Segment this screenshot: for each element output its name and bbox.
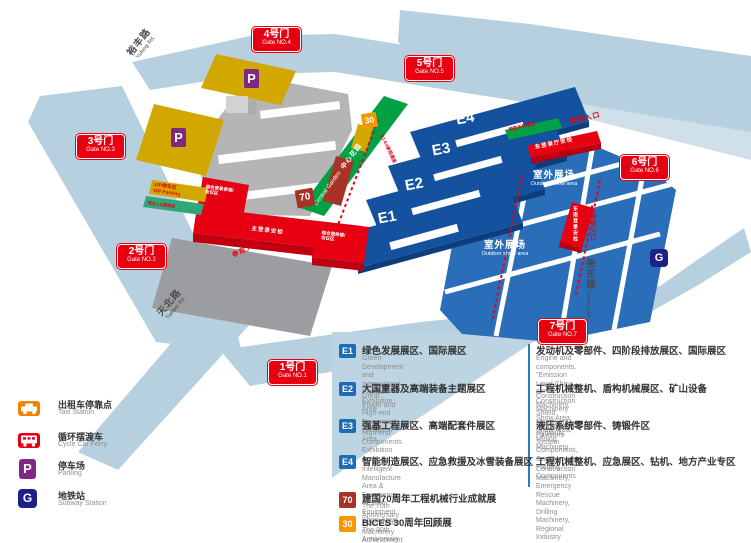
- parking-icon: P: [171, 128, 186, 147]
- parking-icon: P: [19, 459, 36, 479]
- gate-7-sublabel: Gate NO.7: [539, 332, 586, 339]
- legend-parking-en: Parking: [58, 470, 82, 477]
- gate-2-badge: 2号门 Gate NO.2: [117, 244, 166, 269]
- check-southeast-label: 东南登录安检: [572, 206, 579, 242]
- hall-e2-label: E2: [404, 174, 425, 194]
- gate-2-label: 2号门: [118, 246, 165, 257]
- legend-ferry: 循环摆渡车 Cycle Car Ferry: [18, 430, 158, 458]
- outdoor-label-north: 室外展场 Outdoor show area: [514, 170, 594, 188]
- legend-e4-en-right: Construction Machinery, Emergency Rescue…: [536, 466, 575, 543]
- legend-ferry-en: Cycle Car Ferry: [58, 441, 107, 448]
- subway-station-icon: G: [18, 489, 37, 508]
- gate-4-badge: 4号门 Gate NO.4: [252, 27, 301, 52]
- gate-4-sublabel: Gate NO.4: [253, 40, 300, 47]
- road-label-yudong: 裕东路 Yudong Rd.: [584, 258, 594, 318]
- gate-3-sublabel: Gate NO.3: [77, 147, 124, 154]
- gate-3-label: 3号门: [77, 136, 124, 147]
- road-yudong-en: Yudong Rd.: [584, 290, 591, 319]
- legend-badge-30: 30: [339, 516, 356, 532]
- legend-badge-e1: E1: [339, 344, 356, 358]
- legend-subway-en: Subway Station: [58, 500, 107, 507]
- legend-taxi-en: Taxi Station: [58, 409, 94, 416]
- gate-7-label: 7号门: [539, 321, 586, 332]
- legend-subway: G 地铁站 Subway Station: [18, 489, 158, 517]
- outdoor-label-en: Outdoor show area: [514, 181, 594, 188]
- gate-6-sublabel: Gate NO.6: [621, 168, 668, 175]
- badge-30: 30: [361, 112, 378, 129]
- hall-e4-label: E4: [455, 108, 476, 128]
- outdoor-label-south: 室外展场 Outdoor show area: [465, 240, 545, 258]
- legend-badge-e4: E4: [339, 455, 356, 469]
- road-yudong-cn: 裕东路: [584, 258, 594, 290]
- legend-badge-70: 70: [339, 492, 356, 508]
- parking-icon: P: [244, 69, 259, 88]
- legend-parking: P 停车场 Parking: [18, 459, 158, 487]
- badge-70: 70: [295, 188, 316, 209]
- gate-1-badge: 1号门 Gate NO.1: [268, 360, 317, 385]
- hall-e3-label: E3: [431, 139, 452, 159]
- gate-5-badge: 5号门 Gate NO.5: [405, 56, 454, 81]
- gate-2-sublabel: Gate NO.2: [118, 257, 165, 264]
- shuttle-bus-icon: [18, 433, 40, 448]
- gate-1-label: 1号门: [269, 362, 316, 373]
- gate-5-sublabel: Gate NO.5: [406, 69, 453, 76]
- entrance-label-east: 参观入口: [588, 213, 597, 241]
- legend-taxi: 出租车停靠点 Taxi Station: [18, 398, 158, 426]
- venue-map: 1号门 Gate NO.1 2号门 Gate NO.2 3号门 Gate NO.…: [0, 0, 751, 543]
- gate-3-badge: 3号门 Gate NO.3: [76, 134, 125, 159]
- gate-6-label: 6号门: [621, 157, 668, 168]
- legend-30-en: The 30th Anniversary of BICES Review Exh…: [362, 527, 399, 543]
- gate-7-badge: 7号门 Gate NO.7: [538, 319, 587, 344]
- legend-badge-e2: E2: [339, 382, 356, 396]
- gate-4-label: 4号门: [253, 29, 300, 40]
- gate-1-sublabel: Gate NO.1: [269, 373, 316, 380]
- gate-6-badge: 6号门 Gate NO.6: [620, 155, 669, 180]
- gate-5-label: 5号门: [406, 58, 453, 69]
- outdoor-label-en: Outdoor show area: [465, 251, 545, 258]
- outdoor-label-cn: 室外展场: [514, 170, 594, 181]
- hall-e1-label: E1: [377, 207, 398, 227]
- outdoor-label-cn: 室外展场: [465, 240, 545, 251]
- subway-station-icon: G: [650, 249, 668, 267]
- entrance-arrow: ▲: [589, 204, 595, 210]
- taxi-icon: [18, 401, 40, 416]
- legend-badge-e3: E3: [339, 419, 356, 433]
